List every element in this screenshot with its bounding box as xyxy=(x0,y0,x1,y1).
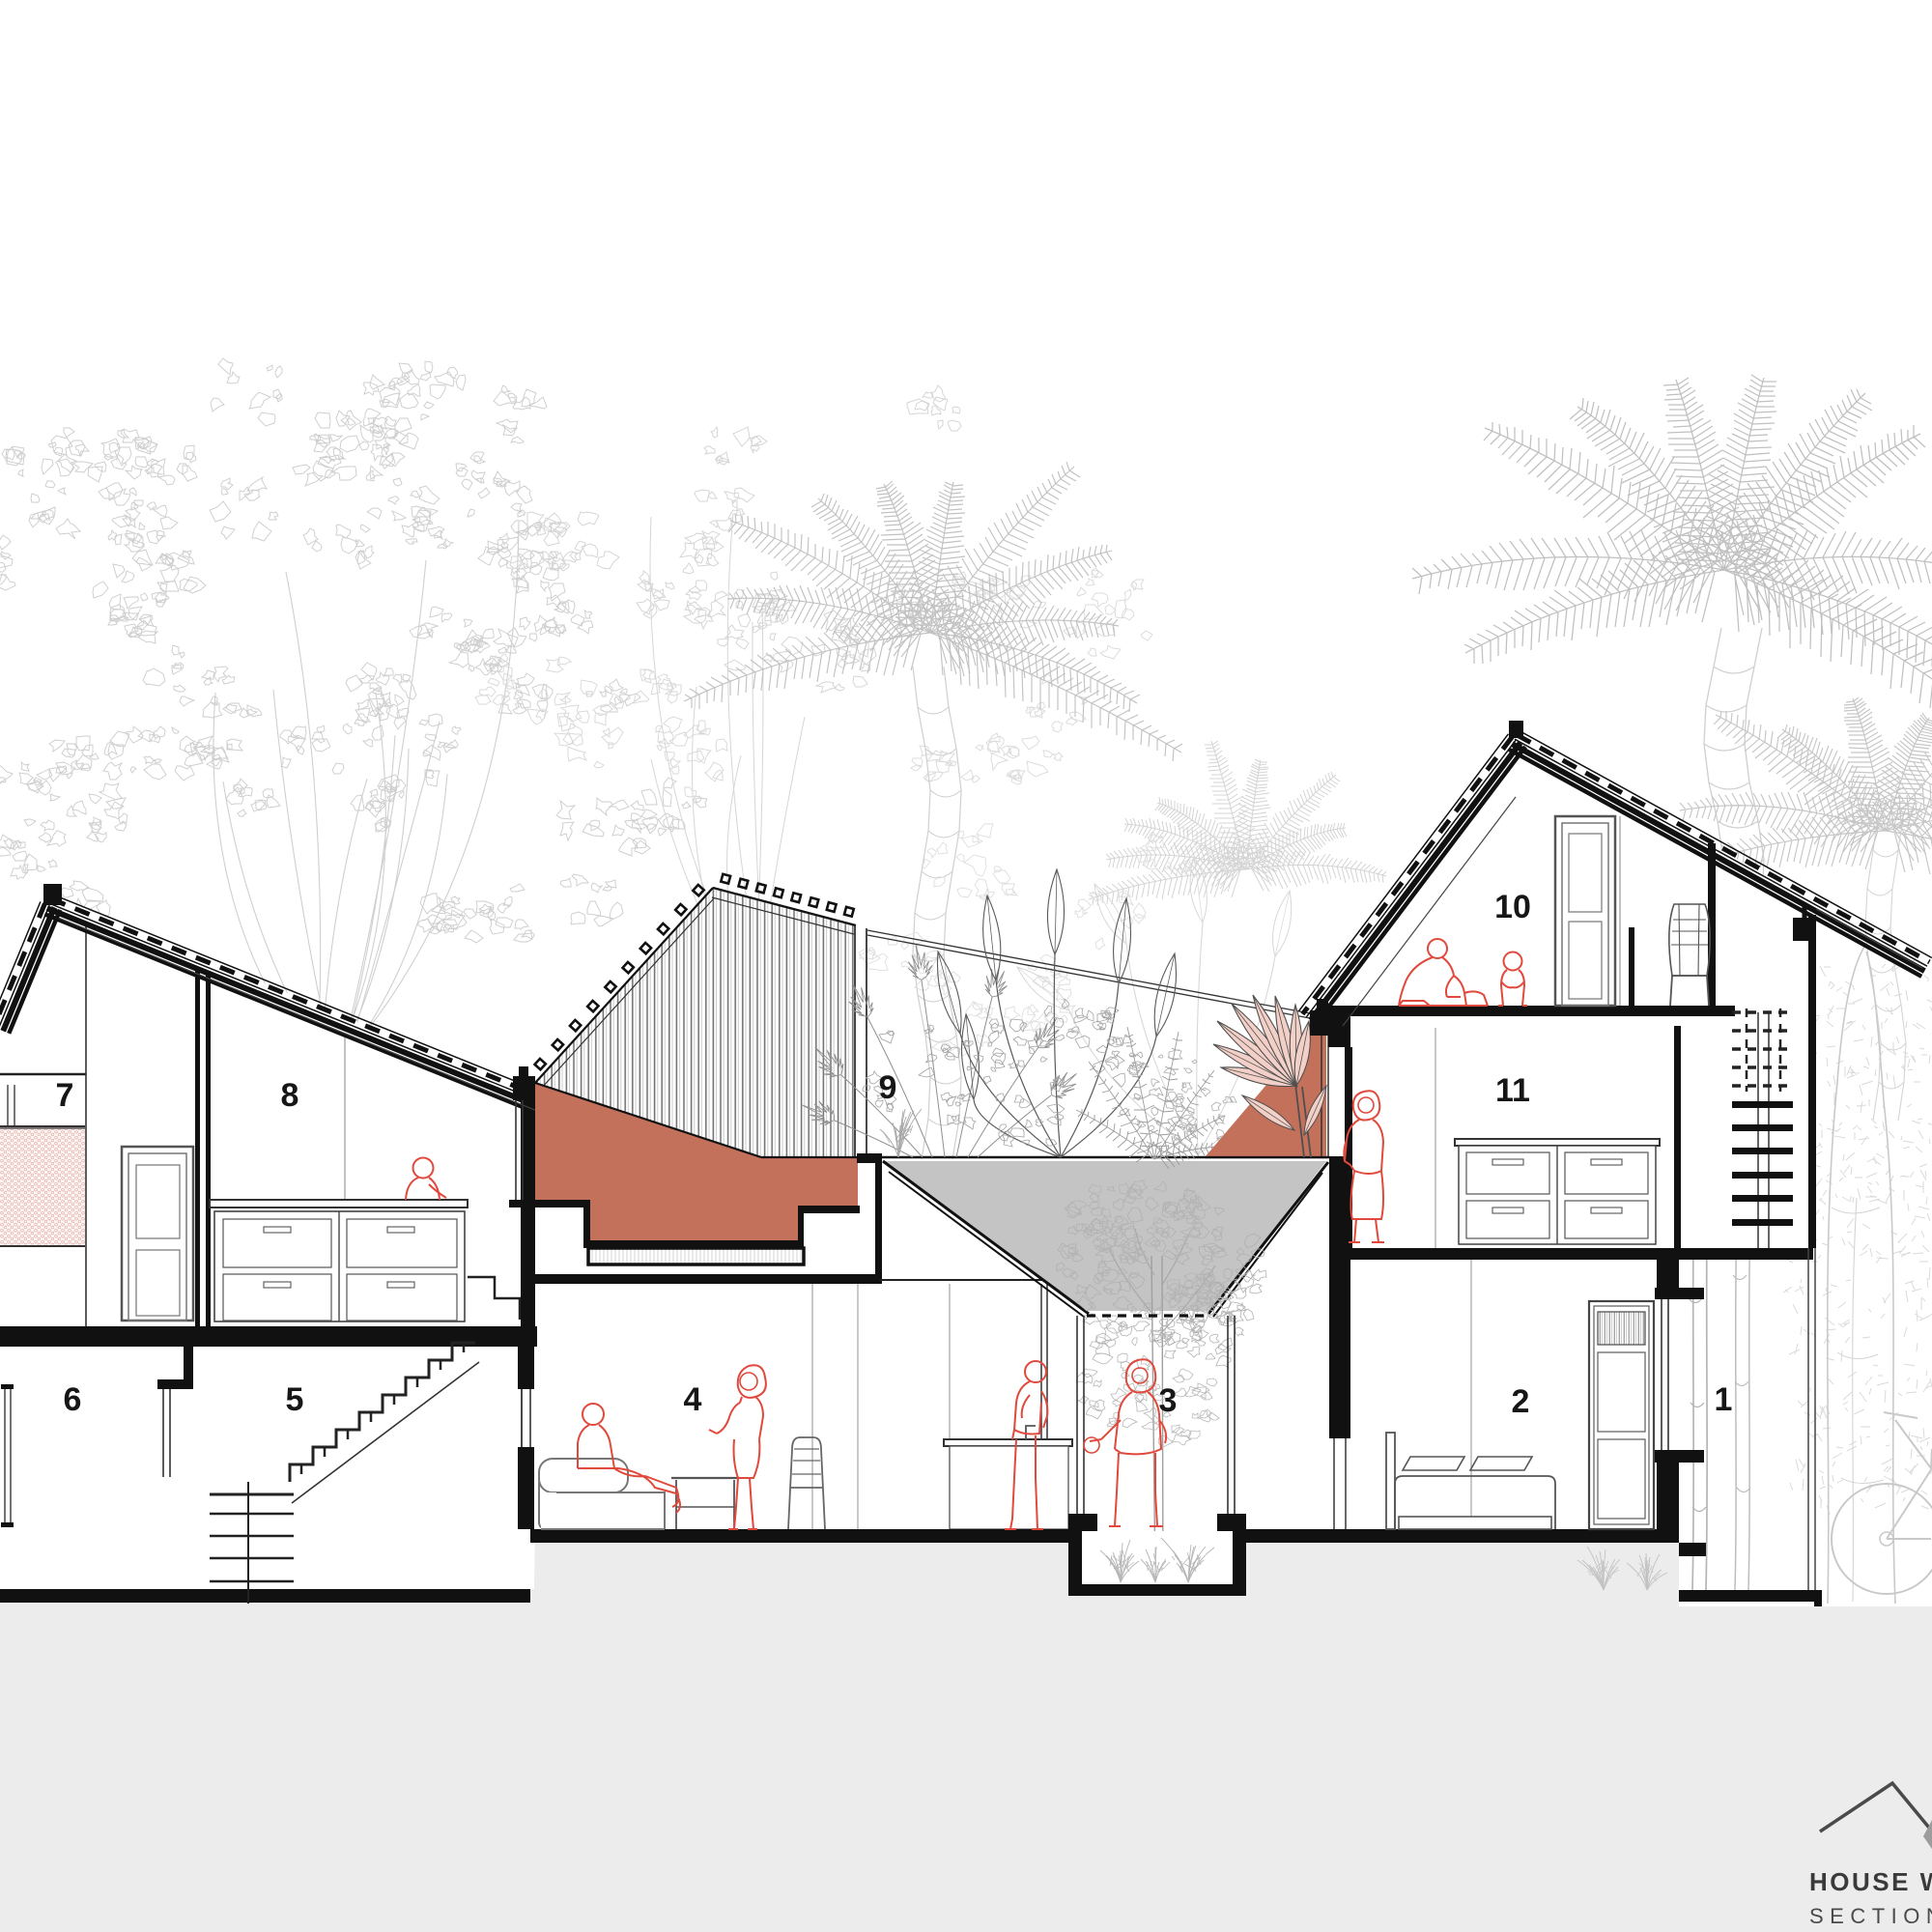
svg-text:5: 5 xyxy=(286,1381,304,1418)
svg-text:2: 2 xyxy=(1512,1383,1530,1420)
svg-text:7: 7 xyxy=(56,1077,74,1114)
svg-text:3: 3 xyxy=(1159,1382,1178,1419)
svg-text:11: 11 xyxy=(1495,1072,1530,1109)
svg-text:10: 10 xyxy=(1494,889,1531,925)
svg-text:6: 6 xyxy=(64,1381,82,1418)
svg-text:4: 4 xyxy=(684,1381,702,1418)
svg-text:8: 8 xyxy=(281,1077,299,1114)
svg-text:SECTION -: SECTION - xyxy=(1809,1904,1932,1928)
svg-text:1: 1 xyxy=(1715,1381,1733,1418)
svg-text:9: 9 xyxy=(879,1069,897,1106)
svg-text:HOUSE WIT: HOUSE WIT xyxy=(1809,1867,1932,1896)
